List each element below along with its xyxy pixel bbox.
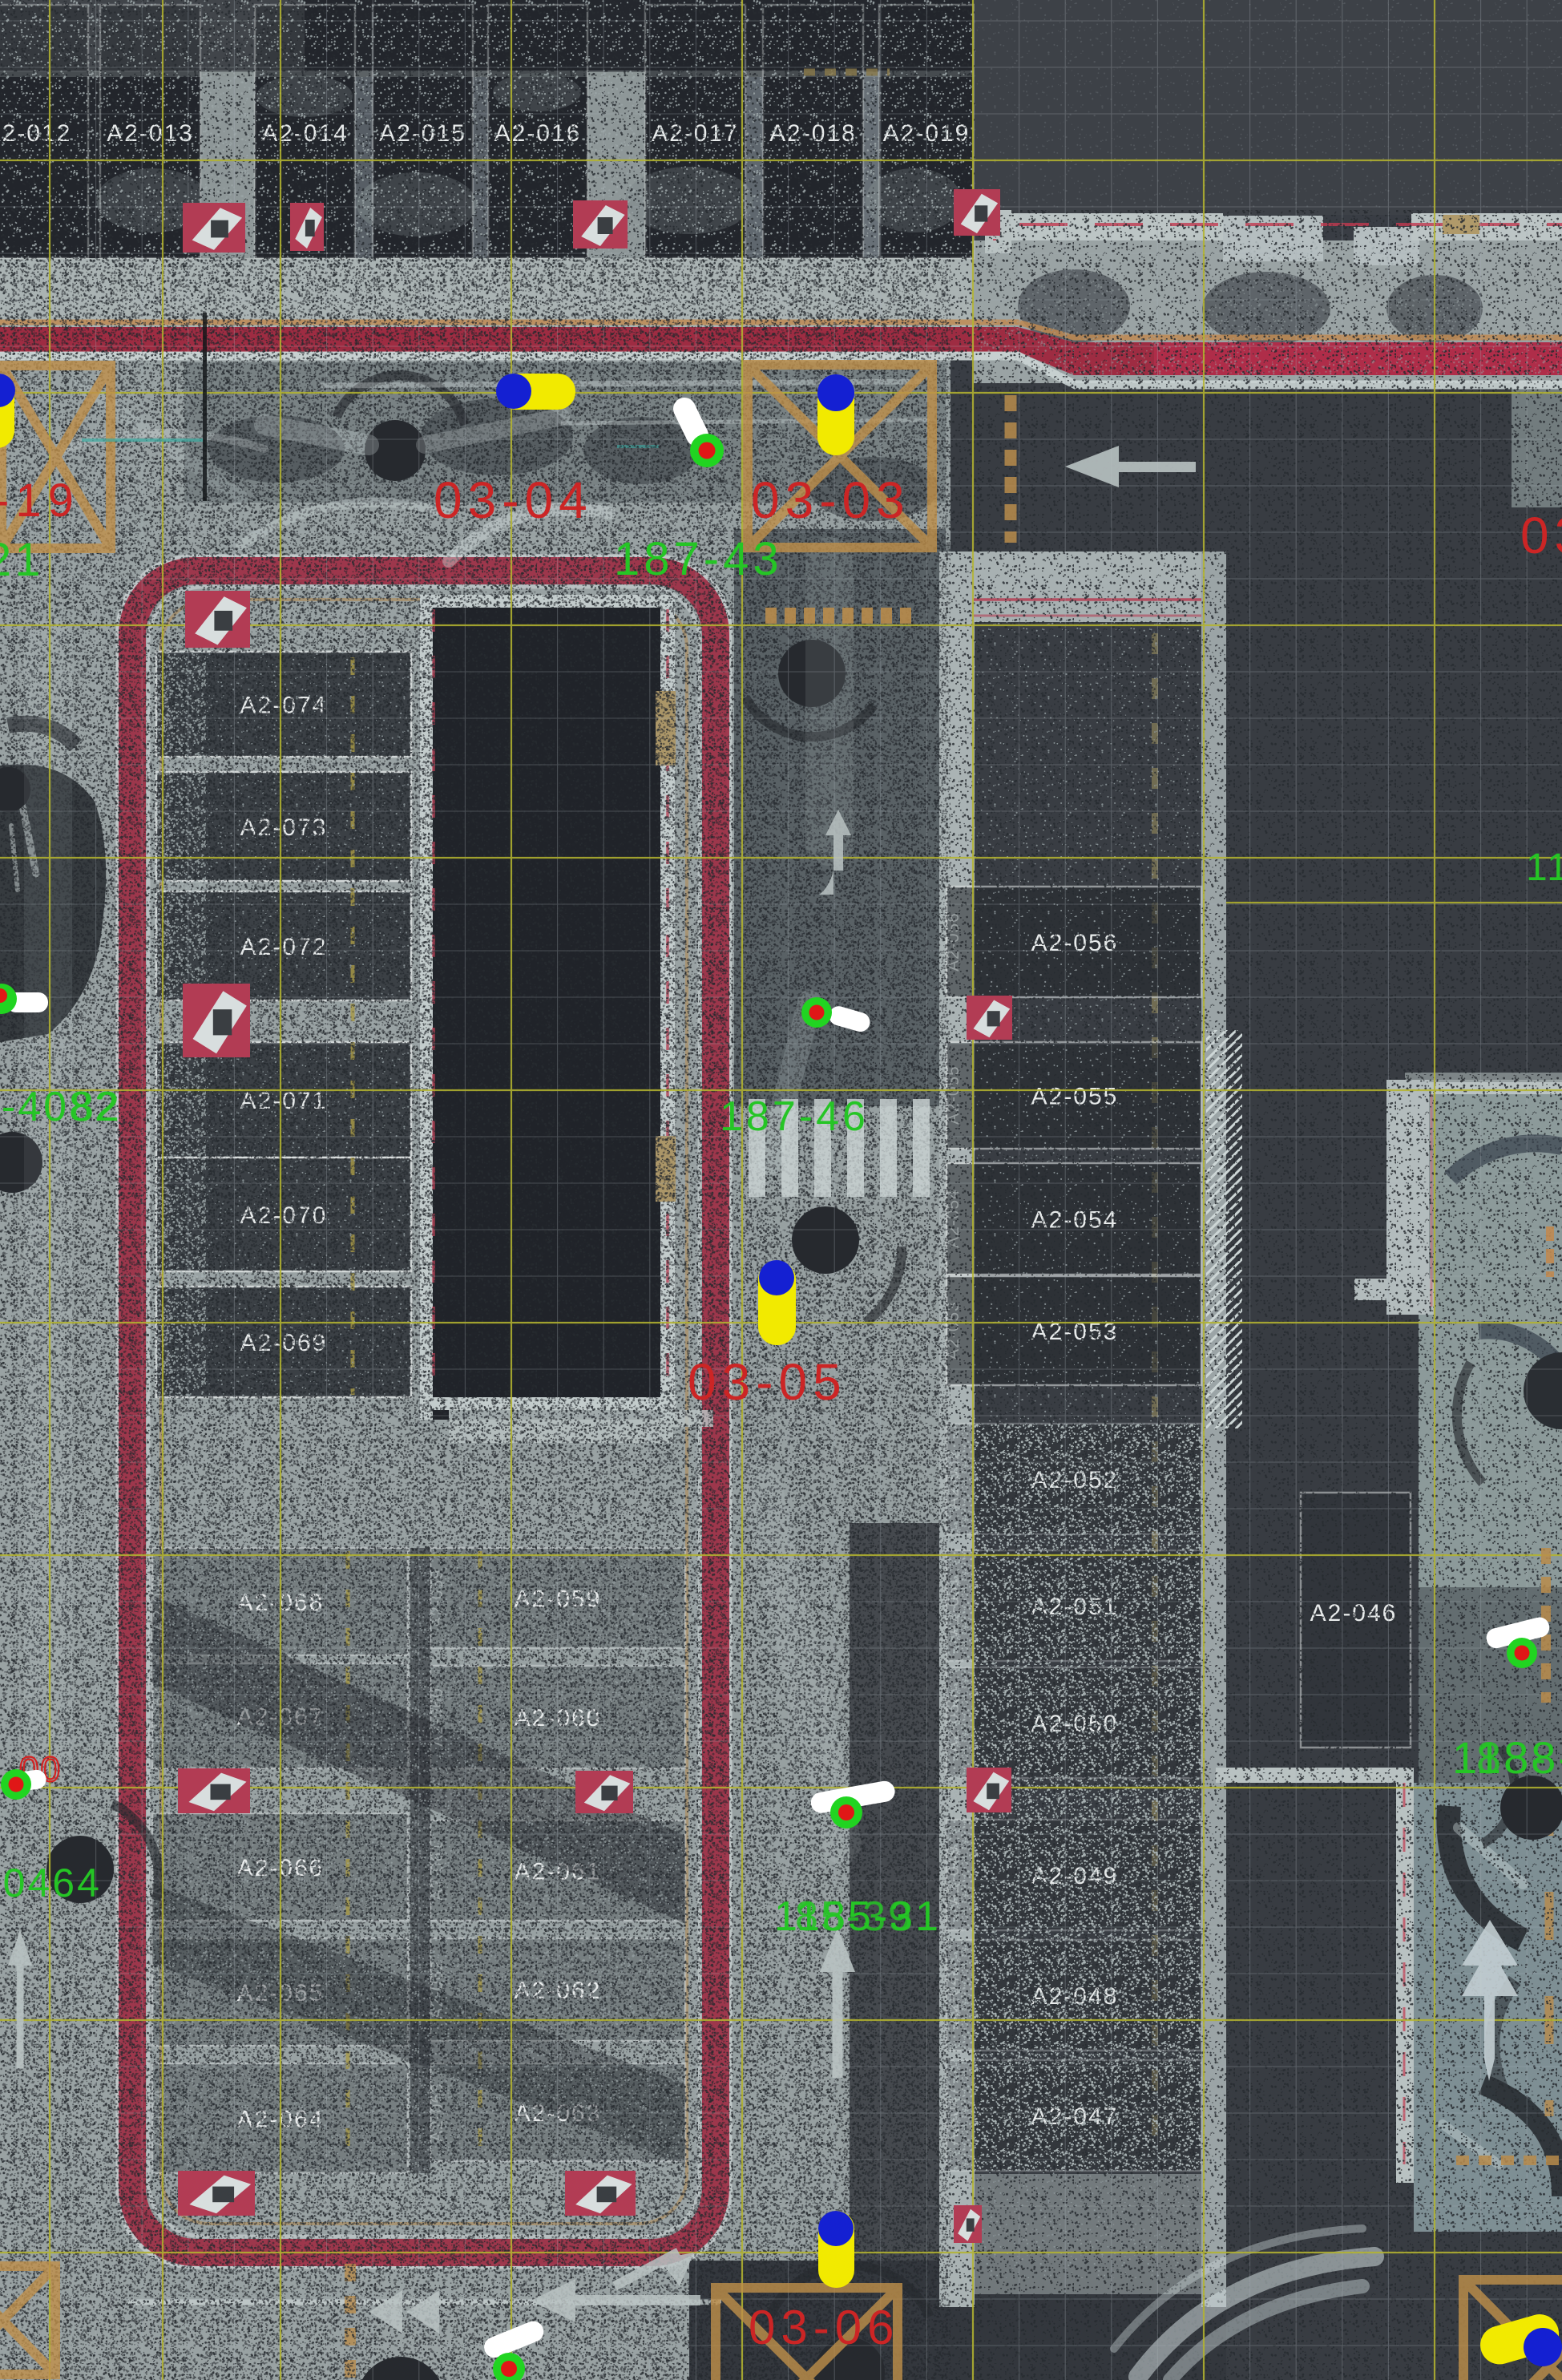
svg-text:82: 82 [71, 1084, 122, 1130]
svg-text:03-03: 03-03 [751, 471, 910, 529]
svg-text:03-: 03- [1520, 507, 1562, 564]
svg-text:03-04: 03-04 [434, 471, 593, 529]
svg-text:187-43: 187-43 [614, 533, 783, 585]
svg-text:88-: 88- [1476, 1732, 1548, 1783]
svg-text:187-46: 187-46 [720, 1093, 869, 1140]
svg-text:11: 11 [1526, 847, 1562, 889]
svg-text:21: 21 [0, 534, 44, 586]
svg-text:85-39: 85-39 [795, 1893, 914, 1940]
svg-text:-19: -19 [0, 475, 80, 527]
svg-text:-0464: -0464 [0, 1861, 102, 1905]
svg-text:03-05: 03-05 [688, 1353, 847, 1411]
svg-text:03-06: 03-06 [749, 2301, 899, 2354]
